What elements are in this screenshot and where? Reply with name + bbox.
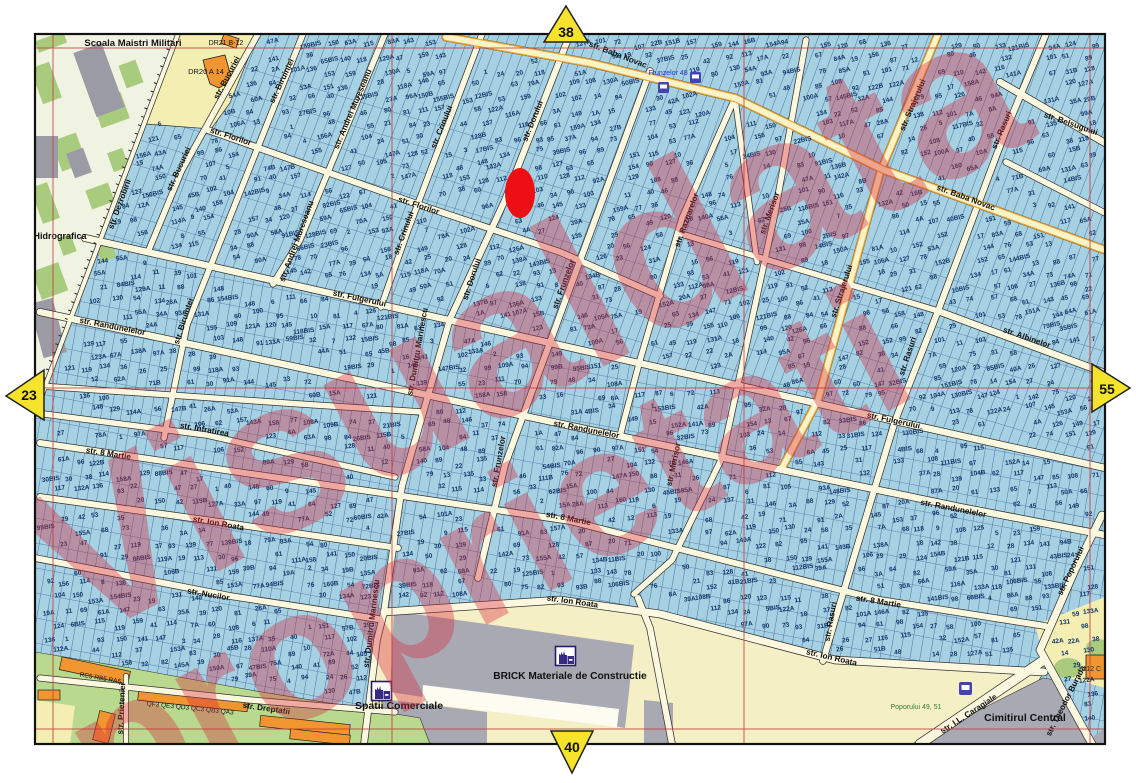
svg-text:103: 103 — [213, 334, 225, 342]
svg-text:38: 38 — [1092, 636, 1100, 644]
svg-text:108: 108 — [927, 455, 939, 463]
svg-text:136: 136 — [1087, 690, 1099, 698]
svg-text:150: 150 — [768, 527, 780, 535]
svg-text:67A: 67A — [109, 351, 122, 359]
svg-text:119: 119 — [81, 366, 93, 374]
svg-text:38: 38 — [821, 593, 829, 601]
svg-text:54: 54 — [133, 295, 141, 303]
svg-text:130: 130 — [1083, 646, 1095, 654]
svg-text:131: 131 — [1059, 618, 1071, 626]
svg-text:136: 136 — [79, 392, 91, 400]
svg-text:81: 81 — [1004, 570, 1012, 578]
svg-text:134: 134 — [727, 608, 739, 616]
svg-text:Poporului 49, 51: Poporului 49, 51 — [891, 704, 942, 711]
svg-text:37A: 37A — [918, 469, 931, 477]
svg-text:116: 116 — [877, 634, 889, 642]
svg-text:130: 130 — [112, 294, 124, 302]
svg-text:141: 141 — [1039, 540, 1051, 548]
svg-text:82: 82 — [913, 570, 921, 578]
svg-text:82: 82 — [845, 605, 853, 613]
svg-text:28: 28 — [950, 651, 958, 659]
svg-text:115: 115 — [900, 631, 912, 639]
svg-text:52: 52 — [842, 501, 850, 509]
svg-text:34A: 34A — [155, 310, 168, 318]
svg-text:135: 135 — [917, 610, 929, 618]
svg-text:100: 100 — [98, 394, 110, 402]
svg-text:94: 94 — [858, 622, 866, 630]
svg-text:48: 48 — [894, 649, 902, 657]
svg-text:88: 88 — [177, 284, 185, 292]
svg-text:23: 23 — [1013, 530, 1021, 538]
svg-text:133: 133 — [989, 486, 1001, 494]
svg-text:134: 134 — [99, 362, 111, 370]
svg-text:121: 121 — [1010, 556, 1022, 564]
svg-text:125: 125 — [973, 524, 985, 532]
svg-text:71: 71 — [779, 517, 787, 525]
svg-text:42A: 42A — [1051, 637, 1064, 645]
svg-text:7A: 7A — [877, 523, 886, 531]
svg-text:58: 58 — [946, 624, 954, 632]
svg-text:87A: 87A — [930, 487, 943, 495]
svg-text:64: 64 — [802, 637, 810, 645]
svg-text:18: 18 — [800, 611, 808, 619]
svg-text:115: 115 — [780, 594, 792, 602]
svg-text:108: 108 — [1067, 472, 1079, 480]
svg-text:113: 113 — [1046, 482, 1058, 490]
svg-text:95: 95 — [800, 538, 808, 546]
svg-text:142: 142 — [930, 539, 942, 547]
svg-text:152: 152 — [706, 583, 718, 591]
svg-text:35: 35 — [845, 525, 853, 533]
svg-text:151: 151 — [1031, 604, 1043, 612]
svg-text:Frunzelor 48: Frunzelor 48 — [648, 70, 687, 77]
svg-text:11: 11 — [152, 269, 160, 277]
svg-text:122: 122 — [755, 542, 767, 550]
svg-text:Hidrografica: Hidrografica — [33, 231, 87, 241]
svg-text:144: 144 — [97, 257, 109, 265]
svg-text:55: 55 — [1099, 381, 1115, 397]
svg-text:55A: 55A — [93, 269, 106, 277]
svg-text:111: 111 — [285, 293, 296, 301]
svg-text:30A: 30A — [898, 582, 911, 590]
svg-text:26A: 26A — [165, 298, 178, 306]
svg-text:66: 66 — [1080, 488, 1088, 496]
svg-text:83: 83 — [1084, 701, 1092, 709]
svg-text:108: 108 — [955, 526, 967, 534]
svg-text:51: 51 — [985, 651, 993, 659]
svg-text:100: 100 — [252, 307, 264, 315]
svg-text:18: 18 — [916, 540, 924, 548]
svg-text:57: 57 — [974, 633, 982, 641]
svg-text:24: 24 — [804, 527, 812, 535]
svg-text:134: 134 — [154, 297, 166, 305]
svg-text:3A: 3A — [874, 570, 883, 578]
svg-text:93: 93 — [795, 624, 803, 632]
svg-text:37: 37 — [910, 515, 918, 523]
svg-text:12: 12 — [987, 543, 995, 551]
svg-text:15: 15 — [1043, 459, 1051, 467]
svg-text:62A: 62A — [113, 375, 126, 383]
svg-text:55A: 55A — [115, 254, 128, 262]
svg-text:86A: 86A — [1006, 591, 1019, 599]
svg-text:133: 133 — [893, 457, 905, 465]
svg-text:11: 11 — [794, 597, 802, 605]
svg-text:117: 117 — [1079, 590, 1091, 598]
svg-text:68: 68 — [916, 448, 924, 456]
svg-text:36: 36 — [120, 364, 128, 372]
svg-text:39: 39 — [174, 270, 182, 278]
svg-text:21: 21 — [693, 578, 701, 586]
svg-text:21: 21 — [100, 284, 108, 292]
svg-text:23: 23 — [21, 387, 37, 403]
svg-text:29: 29 — [876, 553, 884, 561]
svg-text:141: 141 — [817, 543, 829, 551]
svg-text:102: 102 — [89, 297, 101, 305]
svg-text:87: 87 — [882, 503, 890, 511]
svg-text:65: 65 — [1010, 486, 1018, 494]
svg-text:147: 147 — [1033, 474, 1045, 482]
svg-text:148: 148 — [244, 300, 256, 308]
svg-text:35A: 35A — [965, 568, 978, 576]
svg-text:62: 62 — [1013, 501, 1021, 509]
svg-text:115: 115 — [972, 553, 984, 561]
svg-text:68: 68 — [902, 526, 910, 534]
svg-text:38: 38 — [950, 540, 958, 548]
svg-text:130: 130 — [784, 523, 796, 531]
svg-text:82: 82 — [775, 541, 783, 549]
svg-text:DR21 B-12: DR21 B-12 — [209, 40, 244, 47]
svg-text:159: 159 — [1029, 525, 1041, 533]
svg-text:98: 98 — [951, 596, 959, 604]
svg-text:39A: 39A — [814, 564, 827, 572]
svg-text:11: 11 — [158, 284, 166, 292]
svg-text:124: 124 — [53, 622, 65, 630]
svg-text:56: 56 — [1055, 500, 1063, 508]
svg-text:58: 58 — [821, 527, 829, 535]
svg-text:26: 26 — [139, 368, 147, 376]
svg-text:12: 12 — [91, 376, 99, 384]
svg-text:65: 65 — [1013, 632, 1021, 640]
svg-text:150: 150 — [786, 554, 798, 562]
svg-text:145: 145 — [870, 511, 882, 519]
svg-text:123: 123 — [756, 594, 768, 602]
svg-text:96: 96 — [932, 510, 940, 518]
svg-text:139: 139 — [951, 475, 963, 483]
svg-text:109: 109 — [226, 320, 238, 328]
svg-text:98: 98 — [1081, 623, 1089, 631]
svg-text:97A: 97A — [740, 620, 753, 628]
svg-text:DR20 A 14: DR20 A 14 — [188, 67, 224, 76]
svg-text:154: 154 — [912, 622, 924, 630]
svg-text:151: 151 — [1083, 564, 1095, 572]
svg-text:56: 56 — [1034, 578, 1042, 586]
svg-text:153: 153 — [892, 516, 904, 524]
svg-text:29: 29 — [899, 553, 907, 561]
svg-text:131: 131 — [1025, 563, 1037, 571]
svg-text:83: 83 — [706, 570, 714, 578]
svg-text:64: 64 — [889, 566, 897, 574]
svg-text:Cimitirul Central: Cimitirul Central — [984, 712, 1066, 724]
svg-text:40: 40 — [564, 739, 580, 755]
svg-text:25: 25 — [160, 366, 168, 374]
svg-text:108: 108 — [1041, 570, 1053, 578]
svg-text:129: 129 — [824, 498, 836, 506]
svg-text:27: 27 — [865, 637, 873, 645]
svg-text:94B: 94B — [1059, 538, 1072, 546]
svg-text:100: 100 — [970, 620, 982, 628]
svg-text:86: 86 — [723, 598, 731, 606]
svg-text:59: 59 — [1072, 611, 1080, 619]
svg-text:101: 101 — [186, 272, 198, 280]
svg-text:14: 14 — [932, 651, 940, 659]
svg-text:55A: 55A — [134, 308, 147, 316]
svg-text:14: 14 — [1022, 460, 1030, 468]
svg-text:Scoala Maistri Militari: Scoala Maistri Militari — [84, 38, 181, 49]
svg-text:50A: 50A — [1060, 488, 1073, 496]
svg-text:26: 26 — [842, 637, 850, 645]
svg-text:82: 82 — [902, 609, 910, 617]
svg-text:45: 45 — [1029, 503, 1037, 511]
svg-text:32: 32 — [939, 635, 947, 643]
svg-text:23: 23 — [769, 578, 777, 586]
svg-text:139: 139 — [83, 340, 95, 348]
svg-text:76: 76 — [650, 583, 658, 591]
svg-text:BRICK Materiale de Constructie: BRICK Materiale de Constructie — [493, 671, 647, 682]
svg-text:86: 86 — [207, 297, 215, 305]
svg-text:38: 38 — [764, 557, 772, 565]
svg-text:38: 38 — [169, 348, 177, 356]
svg-text:71: 71 — [1092, 472, 1100, 480]
svg-text:28: 28 — [1007, 543, 1015, 551]
svg-text:19A: 19A — [42, 609, 55, 617]
svg-text:149: 149 — [1068, 502, 1080, 510]
svg-text:59A: 59A — [944, 565, 957, 573]
svg-text:66A: 66A — [917, 577, 930, 585]
svg-text:2A: 2A — [834, 512, 843, 520]
svg-text:14: 14 — [1061, 650, 1069, 658]
svg-text:115: 115 — [973, 444, 985, 452]
svg-text:121: 121 — [64, 364, 76, 372]
svg-text:85: 85 — [1052, 474, 1060, 482]
svg-text:69: 69 — [1010, 606, 1018, 614]
svg-text:26: 26 — [836, 646, 844, 654]
svg-text:28: 28 — [188, 351, 196, 359]
svg-text:106: 106 — [862, 551, 874, 559]
svg-text:112: 112 — [710, 604, 722, 612]
svg-text:67: 67 — [969, 460, 977, 468]
svg-text:148: 148 — [213, 285, 225, 293]
svg-text:118: 118 — [991, 583, 1003, 591]
svg-text:51: 51 — [877, 583, 885, 591]
svg-text:27: 27 — [930, 623, 938, 631]
svg-text:96: 96 — [858, 566, 866, 574]
svg-text:92: 92 — [1085, 511, 1093, 519]
svg-text:28: 28 — [933, 471, 941, 479]
svg-text:93: 93 — [1042, 593, 1050, 601]
svg-text:30: 30 — [991, 565, 999, 573]
svg-text:95: 95 — [960, 443, 968, 451]
svg-text:134: 134 — [1023, 539, 1035, 547]
svg-text:117: 117 — [95, 340, 107, 348]
svg-text:20A: 20A — [897, 498, 910, 506]
svg-text:81: 81 — [991, 637, 999, 645]
svg-text:61: 61 — [876, 621, 884, 629]
svg-text:61: 61 — [971, 489, 979, 497]
svg-text:111: 111 — [122, 313, 133, 321]
svg-text:20: 20 — [952, 485, 960, 493]
svg-text:98: 98 — [896, 619, 904, 627]
svg-text:73: 73 — [782, 622, 790, 630]
svg-text:22A: 22A — [1067, 637, 1080, 645]
svg-text:135: 135 — [1002, 646, 1014, 654]
svg-text:24A: 24A — [145, 321, 158, 329]
svg-text:117: 117 — [1013, 469, 1025, 477]
svg-text:124: 124 — [916, 554, 928, 562]
svg-text:55: 55 — [120, 338, 128, 346]
svg-text:91: 91 — [817, 517, 825, 525]
svg-text:128: 128 — [722, 568, 734, 576]
svg-text:90: 90 — [762, 623, 770, 631]
svg-text:51B: 51B — [873, 645, 886, 653]
svg-text:38: 38 — [558, 24, 574, 40]
svg-text:88: 88 — [1025, 595, 1033, 603]
svg-text:8A: 8A — [668, 590, 677, 598]
svg-text:120: 120 — [740, 593, 752, 601]
svg-text:136: 136 — [44, 636, 56, 644]
svg-text:60: 60 — [234, 313, 242, 321]
svg-text:62: 62 — [992, 470, 1000, 478]
svg-text:155: 155 — [206, 324, 218, 332]
svg-text:118: 118 — [913, 525, 925, 533]
svg-text:97A: 97A — [152, 349, 165, 357]
